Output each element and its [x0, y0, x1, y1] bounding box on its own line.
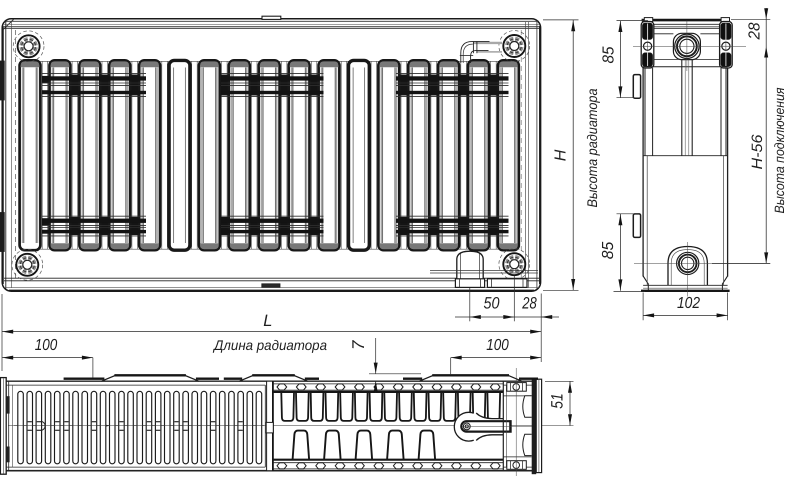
svg-text:Высота подключения: Высота подключения [772, 88, 785, 214]
svg-text:100: 100 [35, 337, 58, 354]
svg-text:51: 51 [549, 393, 567, 409]
svg-text:L: L [263, 312, 272, 330]
svg-text:50: 50 [484, 295, 501, 313]
svg-text:28: 28 [747, 22, 764, 40]
svg-text:28: 28 [521, 295, 537, 313]
svg-text:85: 85 [600, 242, 617, 260]
svg-text:85: 85 [601, 46, 618, 63]
svg-text:7: 7 [349, 340, 368, 350]
svg-text:Длина радиатора: Длина радиатора [212, 337, 327, 353]
svg-text:Высота радиатора: Высота радиатора [584, 88, 600, 207]
svg-text:H-56: H-56 [749, 134, 766, 170]
svg-text:102: 102 [677, 295, 700, 312]
svg-text:100: 100 [486, 337, 509, 354]
svg-text:H: H [553, 149, 570, 161]
